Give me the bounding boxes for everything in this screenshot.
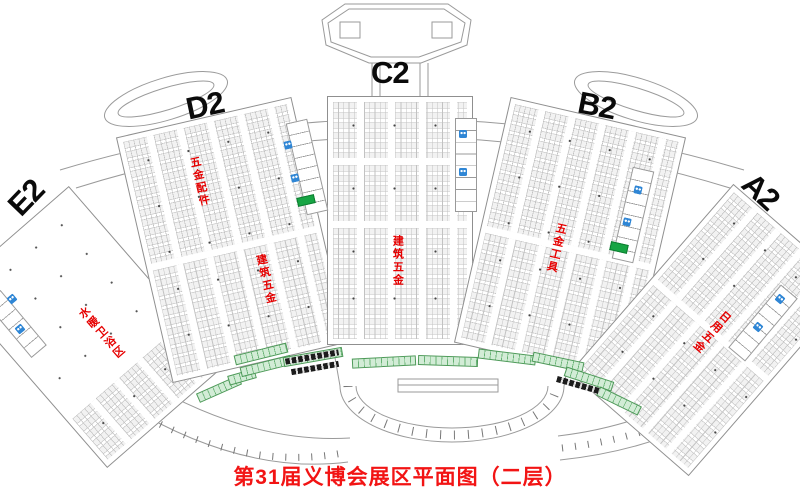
hall-letter-B2: B2 (575, 87, 618, 125)
conference-room-left (340, 22, 360, 38)
zone-label-C2: 建筑五金 (391, 235, 402, 287)
floorplan-canvas: 水暖卫浴区 五金配件 建筑五金 建筑五金 五金工具 日用五金 (0, 0, 800, 491)
conference-room-right (432, 22, 452, 38)
hall-letter-D2: D2 (183, 86, 226, 124)
hall-C2-booth-block-middle (333, 165, 467, 221)
restroom-icon (459, 130, 467, 138)
plan-caption: 第31届义博会展区平面图（二层） (0, 461, 800, 491)
hall-C2: 建筑五金 (327, 96, 473, 345)
hall-letter-C2: C2 (371, 57, 409, 88)
lobby-outer-arc (340, 386, 564, 442)
restroom-icon (459, 168, 467, 176)
conference-building-inner-outline (328, 9, 465, 57)
hall-C2-booth-block-top (333, 102, 467, 158)
green-booth-strip (418, 355, 478, 367)
